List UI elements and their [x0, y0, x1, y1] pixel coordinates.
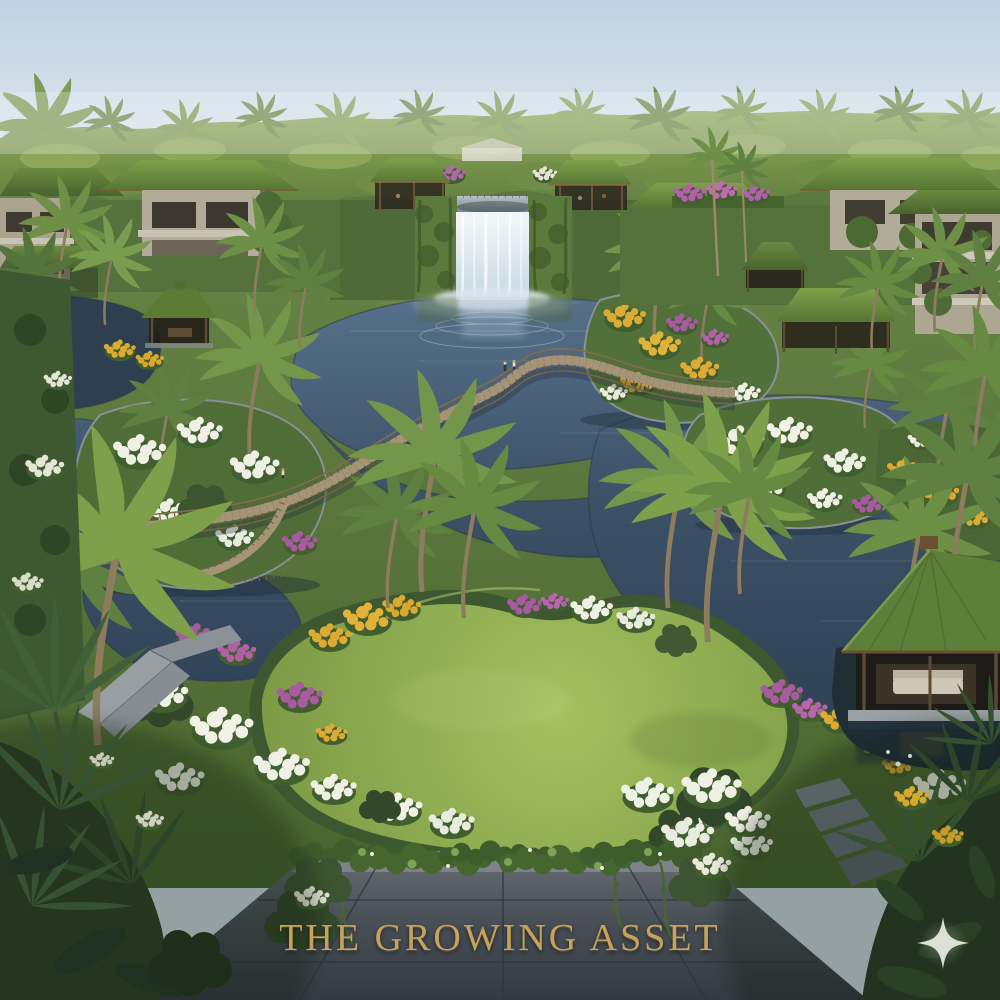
caption-title: THE GROWING ASSET	[0, 916, 1000, 960]
resort-render: THE GROWING ASSET	[0, 0, 1000, 1000]
pavilion-right-2	[776, 288, 896, 354]
scene-illustration	[0, 0, 1000, 1000]
